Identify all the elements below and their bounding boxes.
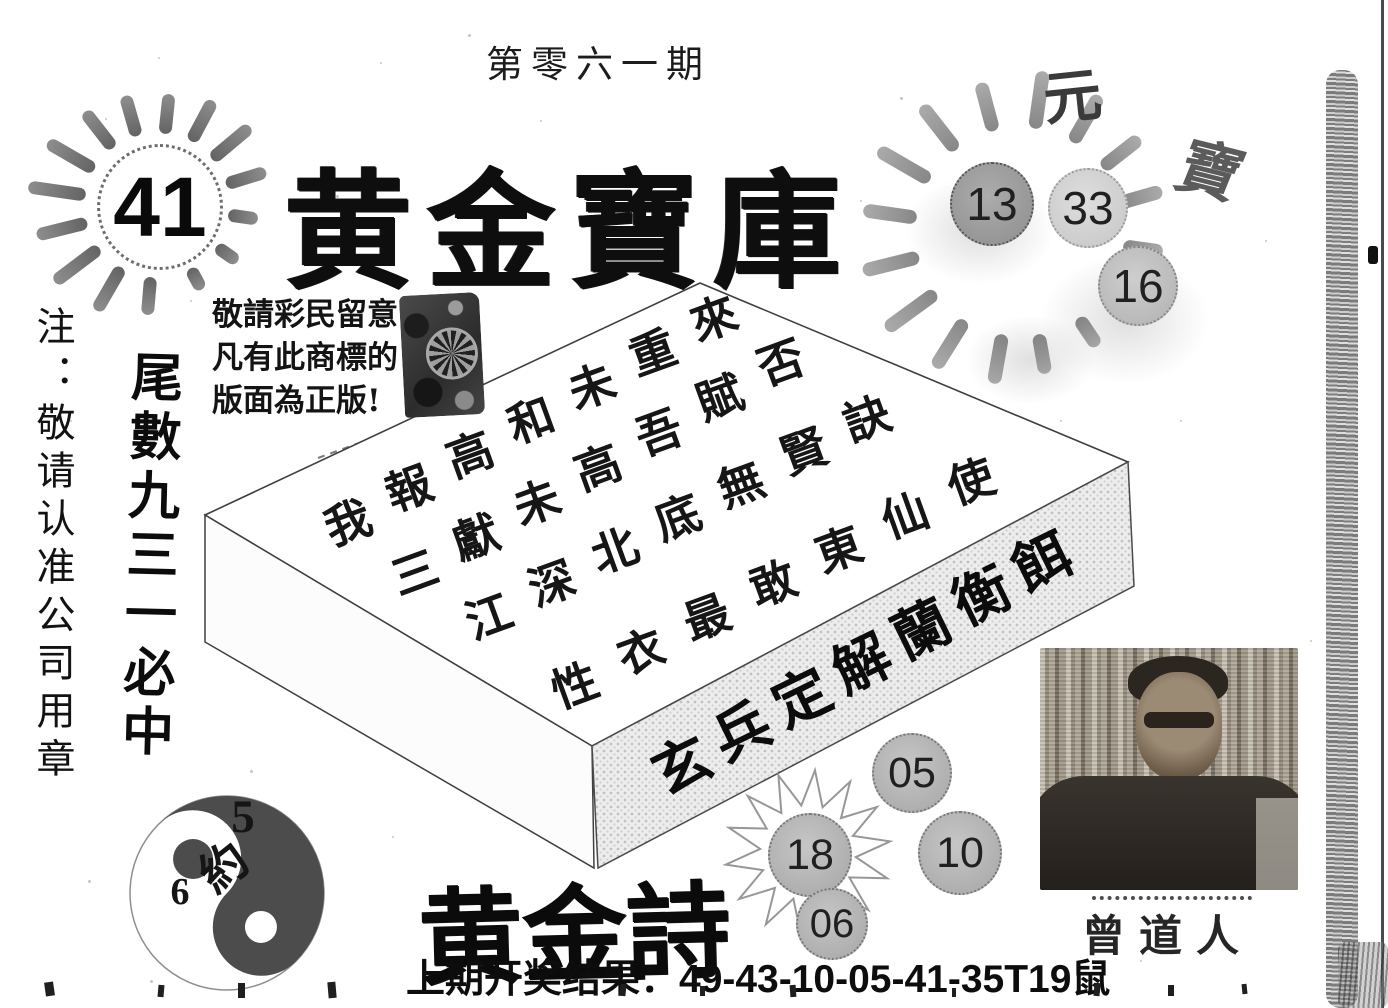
lottery-sheet: 第零六一期 黄金寶庫 敬請彩民留意 凡有此商標的 版面為正版! 注：敬请认准公司… bbox=[0, 0, 1388, 1008]
tail-number-claim: 尾數九三一必中 bbox=[105, 349, 191, 764]
lucky-number-05: 05 bbox=[872, 733, 952, 813]
previous-draw-result: 上期开奖结果：49-43-10-05-41-35T19鼠 bbox=[406, 948, 1110, 1004]
scan-tick-mark bbox=[327, 982, 336, 999]
scan-tick-mark bbox=[1093, 983, 1100, 996]
ball-16-label: 16 bbox=[1112, 259, 1163, 313]
scan-fold-artifact bbox=[1326, 70, 1358, 1008]
ball-06-label: 06 bbox=[810, 902, 855, 947]
scan-tick-mark bbox=[44, 981, 55, 996]
scan-tick-mark bbox=[238, 983, 245, 998]
taiji-number-5: 5 bbox=[231, 790, 255, 844]
scan-corner-grain bbox=[1338, 942, 1388, 1008]
scan-tick-mark bbox=[1168, 985, 1174, 996]
stamp-wheel-icon bbox=[425, 326, 480, 381]
notice-line: 凡有此商標的 bbox=[212, 337, 398, 380]
portrait-light-patch bbox=[1256, 798, 1298, 890]
ball-33-label: 33 bbox=[1062, 181, 1113, 235]
notice-line: 版面為正版! bbox=[212, 380, 398, 423]
trademark-stamp bbox=[399, 292, 485, 418]
ball-18-label: 18 bbox=[786, 831, 834, 880]
lucky-number-13: 13 bbox=[950, 162, 1034, 246]
scan-tick-mark bbox=[952, 988, 956, 997]
scan-tick-mark bbox=[619, 984, 626, 997]
portrait-glasses bbox=[1144, 712, 1214, 728]
ball-41-label: 41 bbox=[113, 159, 206, 256]
scan-tick-mark bbox=[790, 985, 797, 997]
ball-10-label: 10 bbox=[936, 829, 984, 878]
ball-13-label: 13 bbox=[966, 177, 1017, 231]
taiji-number-6: 6 bbox=[171, 870, 190, 914]
company-seal-note: 注：敬请认准公司用章 bbox=[24, 306, 80, 786]
scan-tick-mark bbox=[1241, 984, 1247, 994]
illegible-dotted-text bbox=[1092, 896, 1252, 900]
lucky-number-33: 33 bbox=[1048, 168, 1128, 248]
scan-ink-blob bbox=[1368, 246, 1378, 264]
master-portrait-photo bbox=[1040, 648, 1298, 890]
lucky-number-18: 18 bbox=[768, 813, 852, 897]
calligraphy-yuan: 元 bbox=[1039, 47, 1105, 137]
scan-edge-line bbox=[1381, 0, 1384, 1008]
scan-tick-mark bbox=[700, 986, 705, 996]
issue-title: 第零六一期 bbox=[486, 34, 711, 88]
main-title: 黄金寶庫 bbox=[284, 128, 856, 313]
notice-line: 敬請彩民留意 bbox=[212, 294, 398, 337]
cloud-blob bbox=[965, 315, 1095, 405]
lucky-number-10: 10 bbox=[918, 811, 1002, 895]
authenticity-notice: 敬請彩民留意 凡有此商標的 版面為正版! bbox=[212, 294, 398, 423]
lucky-number-41: 41 bbox=[97, 144, 223, 270]
scan-tick-mark bbox=[157, 985, 164, 997]
lucky-number-16: 16 bbox=[1098, 246, 1178, 326]
ball-05-label: 05 bbox=[888, 749, 936, 798]
